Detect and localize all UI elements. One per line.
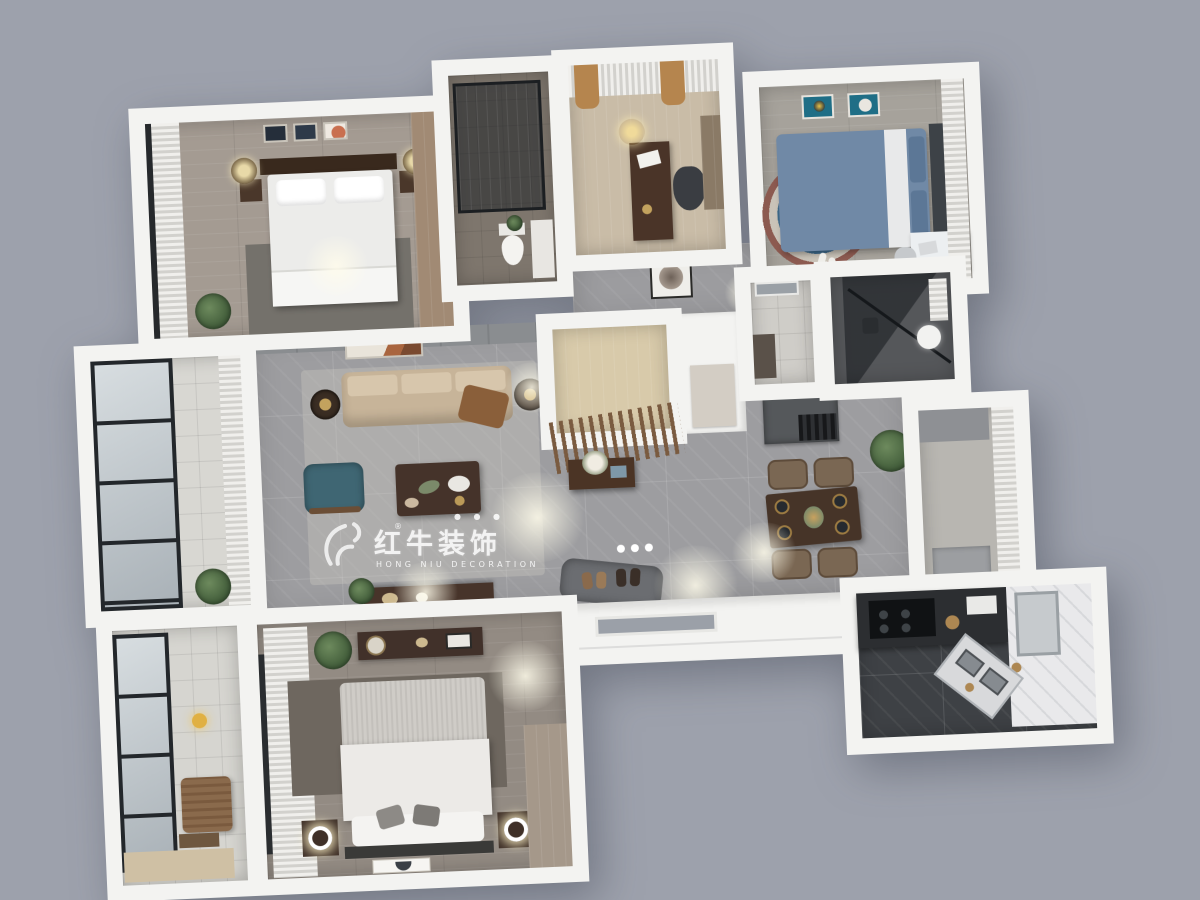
bench	[932, 546, 991, 582]
place-setting	[774, 499, 790, 515]
kettle-gold	[945, 615, 960, 630]
study	[557, 49, 736, 266]
sink-basin	[955, 649, 985, 678]
balloon-icon	[814, 100, 825, 111]
yellow-floor-lamp	[192, 713, 208, 729]
wall-art-balloon	[801, 94, 834, 119]
second-bedroom	[134, 101, 464, 350]
burner	[879, 610, 888, 619]
desk-book	[918, 241, 938, 256]
desk	[629, 141, 673, 241]
sofa	[341, 365, 513, 427]
console-book	[610, 465, 627, 478]
flower-arrangement	[582, 450, 609, 475]
dresser	[357, 627, 483, 660]
place-setting	[832, 493, 848, 509]
floorplan-render-canvas: { "scene": { "type": "3d-floorplan-rende…	[0, 0, 1200, 900]
hongniu-bull-logo-icon	[318, 518, 372, 570]
shoes-pair	[616, 569, 627, 587]
sink-basin	[979, 667, 1009, 696]
art-dark-arc	[395, 861, 411, 871]
white-cabinets	[1006, 583, 1097, 727]
table-decor-gold	[524, 388, 537, 401]
wardrobe	[524, 723, 573, 868]
rain-shower	[862, 317, 879, 334]
bedroom-plant	[313, 631, 353, 671]
tray-white	[966, 595, 997, 614]
desk-paper	[637, 150, 662, 169]
wood-mat	[124, 848, 235, 883]
dining-chair	[767, 459, 808, 491]
bathroom	[438, 61, 568, 296]
side-table-right	[513, 378, 546, 411]
gas-hob	[868, 598, 936, 639]
towel-blinds	[928, 278, 948, 321]
chandelier	[618, 118, 645, 145]
desk-lamp	[642, 204, 652, 214]
ceiling-light-dots	[617, 545, 625, 553]
counter-dark	[856, 587, 1008, 648]
balcony-cabinet	[918, 408, 989, 443]
entry-landing	[546, 591, 868, 667]
sideboard-vent	[798, 413, 837, 441]
accent-pillow	[412, 804, 440, 827]
wall-art-frame	[263, 124, 288, 143]
brand-name-cn: 红牛装饰	[374, 522, 502, 561]
art-circle	[859, 98, 873, 112]
window	[754, 281, 799, 297]
logo-dots: ● ● ●	[454, 512, 505, 521]
centerpiece-flowers	[803, 505, 825, 529]
shoes-pair	[596, 571, 606, 588]
counter	[753, 334, 777, 379]
utility-door	[690, 364, 737, 428]
balcony-window	[112, 633, 178, 873]
fallen-art-frame	[372, 857, 431, 874]
glass-shower	[452, 80, 546, 214]
interior-wall-block	[676, 311, 747, 434]
kids-bed	[776, 128, 931, 252]
dining-chair	[813, 457, 854, 489]
vanity	[530, 219, 555, 278]
sofa-cushion	[401, 372, 452, 394]
laundry-balcony	[102, 615, 259, 896]
shower-room	[820, 262, 965, 395]
fridge	[1014, 591, 1061, 657]
bedroom-plant	[194, 293, 232, 331]
dining-plant	[869, 429, 913, 473]
duvet-fold	[271, 265, 397, 306]
round-wall-art	[649, 255, 693, 299]
shoes-pair	[630, 568, 641, 587]
laundry-room	[740, 270, 825, 395]
textured-throw	[339, 677, 487, 747]
art-swirl	[659, 265, 684, 290]
brand-name-en: HONG NIU DECORATION	[376, 560, 539, 569]
magazine-rack	[179, 833, 220, 849]
dining-balcony	[908, 396, 1032, 601]
dresser-decor	[416, 637, 428, 648]
balcony-plant	[194, 568, 232, 606]
wall-art-frame	[323, 121, 348, 140]
master-bedroom	[246, 601, 583, 890]
entry-door	[595, 612, 718, 637]
pillow	[333, 176, 384, 204]
table-lamp-gold	[319, 398, 332, 411]
gold-drape	[574, 64, 600, 109]
apartment-floorplan	[67, 23, 1112, 896]
faucet-gold	[963, 681, 976, 694]
wall-art-frame	[293, 123, 318, 142]
office-chair	[672, 166, 706, 211]
console-decor	[382, 593, 399, 606]
lounge-chair	[180, 776, 232, 833]
tray-white	[448, 475, 471, 492]
dresser-tray	[445, 632, 472, 649]
gold-drape	[660, 61, 686, 106]
dining-chair	[817, 546, 858, 578]
sheer-curtain	[218, 355, 251, 606]
step-line	[548, 635, 868, 651]
console-dish	[416, 592, 428, 603]
art-red-arc	[331, 125, 346, 140]
wall-art-lamp	[847, 92, 880, 117]
place-setting	[776, 524, 792, 540]
pillow-blue	[908, 136, 926, 183]
pillow	[276, 178, 327, 206]
pillow-blue	[911, 190, 929, 237]
curtains	[991, 406, 1021, 585]
round-mirror	[365, 635, 386, 656]
sofa-cushion	[347, 374, 398, 396]
watermark: ® 红牛装饰 ● ● ● HONG NIU DECORATION	[318, 498, 558, 582]
double-bed	[267, 169, 398, 306]
table-greenery	[417, 478, 442, 497]
place-setting	[834, 519, 850, 535]
console-table	[568, 457, 635, 490]
kitchen	[846, 573, 1108, 749]
living-balcony	[80, 345, 262, 622]
blanket-fold	[884, 129, 911, 248]
dining-chair	[771, 548, 812, 580]
dining-table	[765, 486, 862, 549]
toilet-bowl	[501, 235, 524, 266]
balcony-windows	[90, 358, 183, 611]
book-shelf	[700, 115, 724, 210]
